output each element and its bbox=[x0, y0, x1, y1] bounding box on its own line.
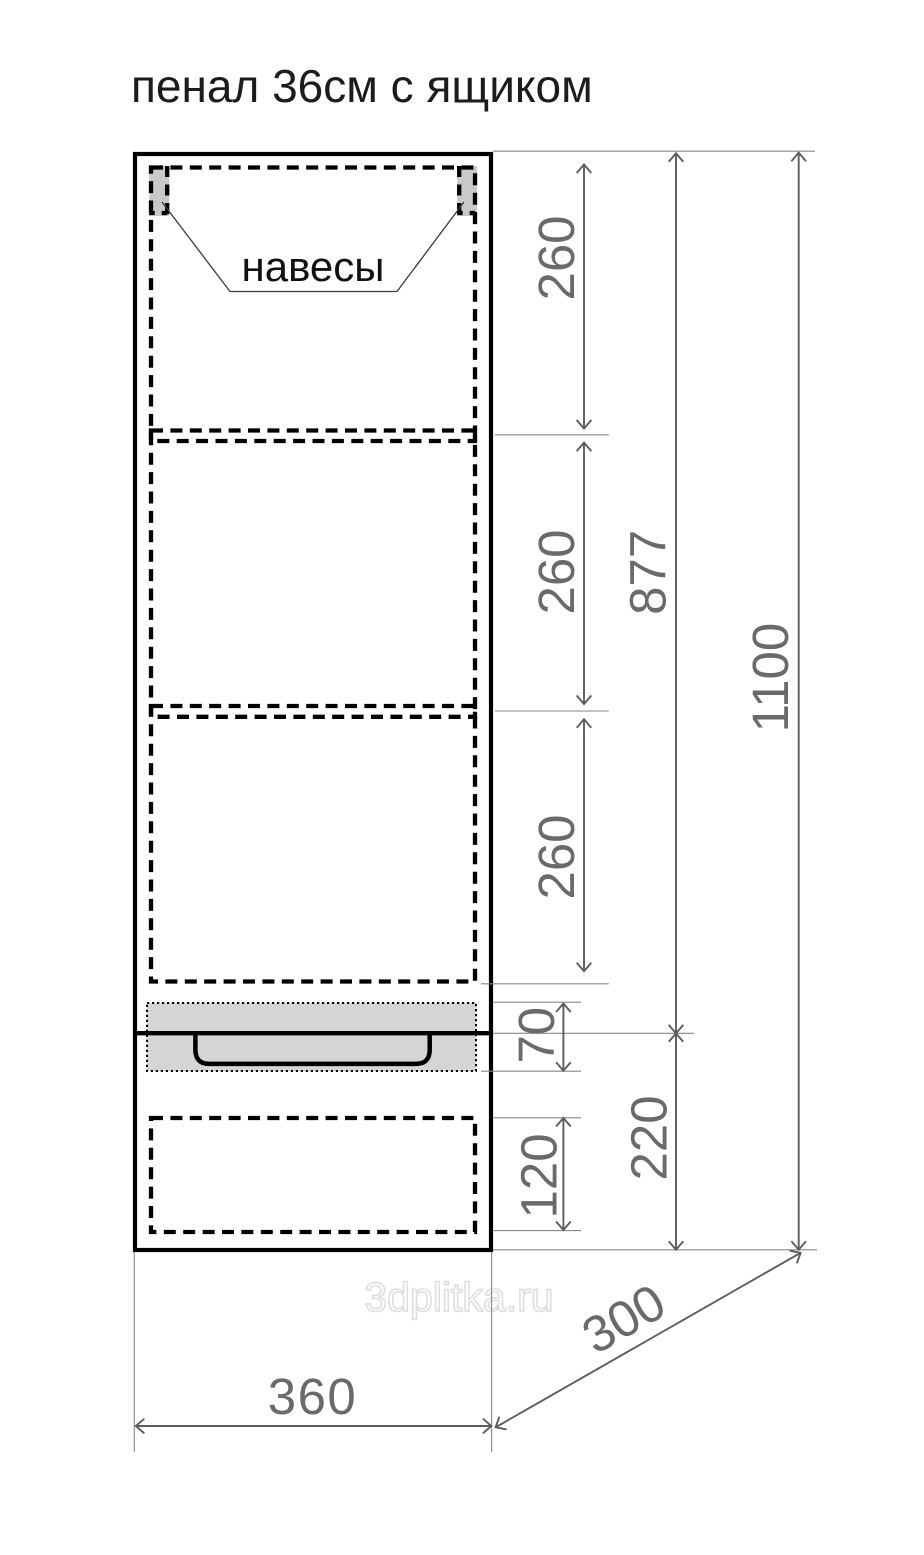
svg-text:70: 70 bbox=[508, 1007, 565, 1064]
svg-text:пенал 36см с ящиком: пенал 36см с ящиком bbox=[131, 60, 593, 112]
svg-text:360: 360 bbox=[268, 1368, 358, 1425]
svg-text:1100: 1100 bbox=[742, 623, 799, 733]
svg-text:260: 260 bbox=[528, 529, 585, 614]
svg-text:877: 877 bbox=[619, 530, 676, 615]
svg-text:260: 260 bbox=[528, 215, 585, 300]
svg-text:260: 260 bbox=[528, 814, 585, 899]
svg-text:220: 220 bbox=[621, 1095, 678, 1180]
svg-text:120: 120 bbox=[510, 1133, 567, 1218]
svg-text:3dplitka.ru: 3dplitka.ru bbox=[364, 1274, 553, 1320]
svg-text:навесы: навесы bbox=[242, 243, 385, 290]
